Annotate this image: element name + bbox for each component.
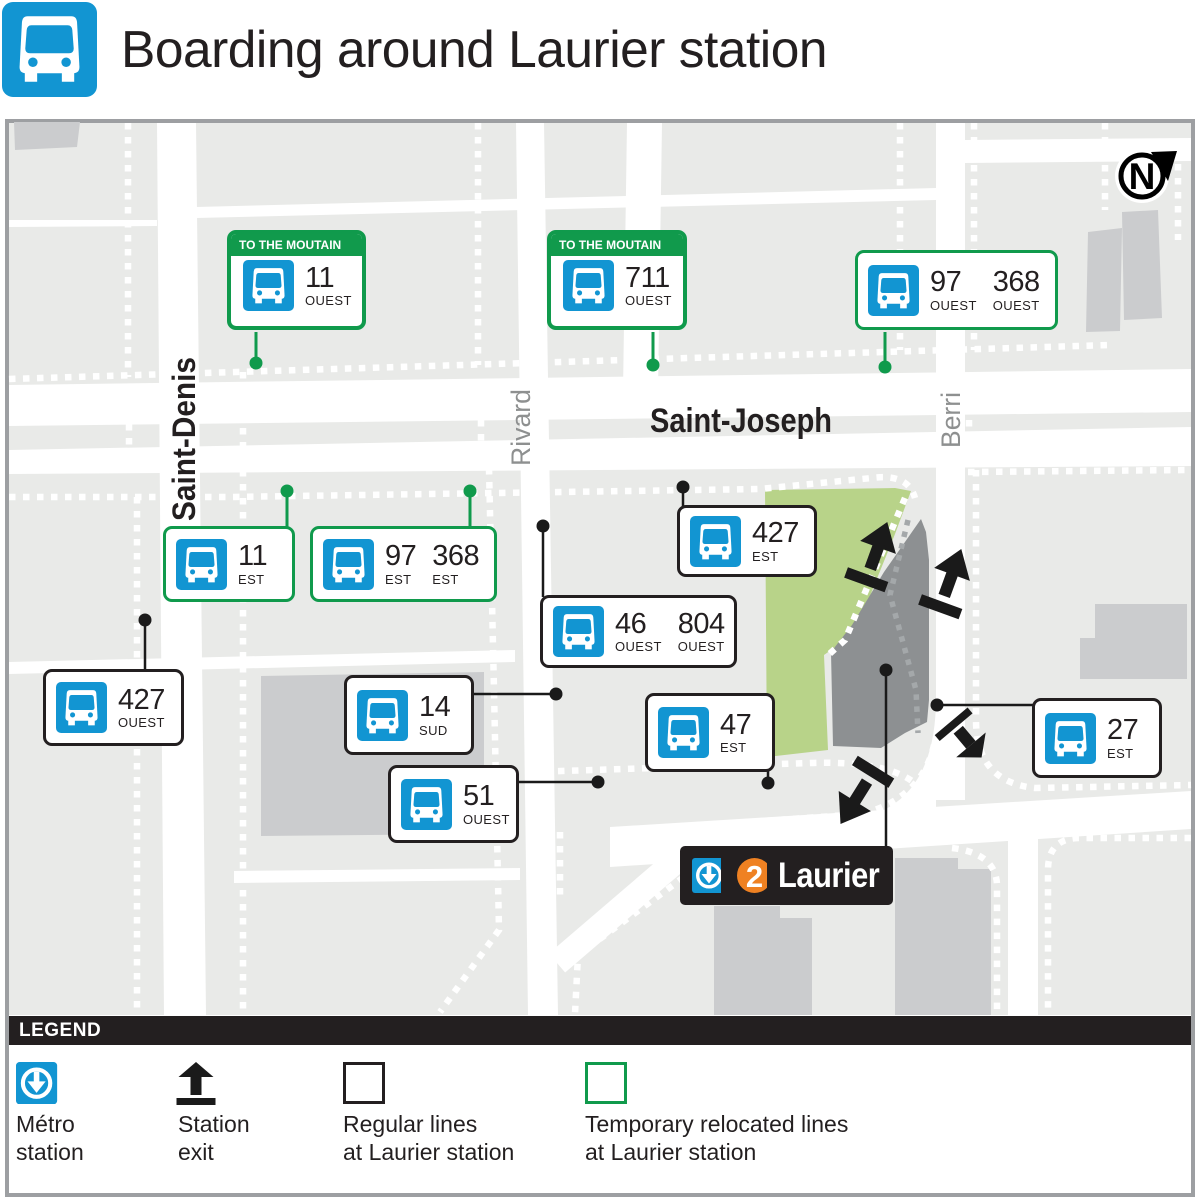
svg-text:2: 2 <box>746 859 763 893</box>
svg-text:Rivard: Rivard <box>506 389 536 466</box>
svg-text:Saint-Joseph: Saint-Joseph <box>650 402 832 440</box>
svg-text:N: N <box>1129 156 1156 197</box>
svg-text:Saint-Denis: Saint-Denis <box>166 357 202 521</box>
svg-text:Berri: Berri <box>936 392 966 448</box>
